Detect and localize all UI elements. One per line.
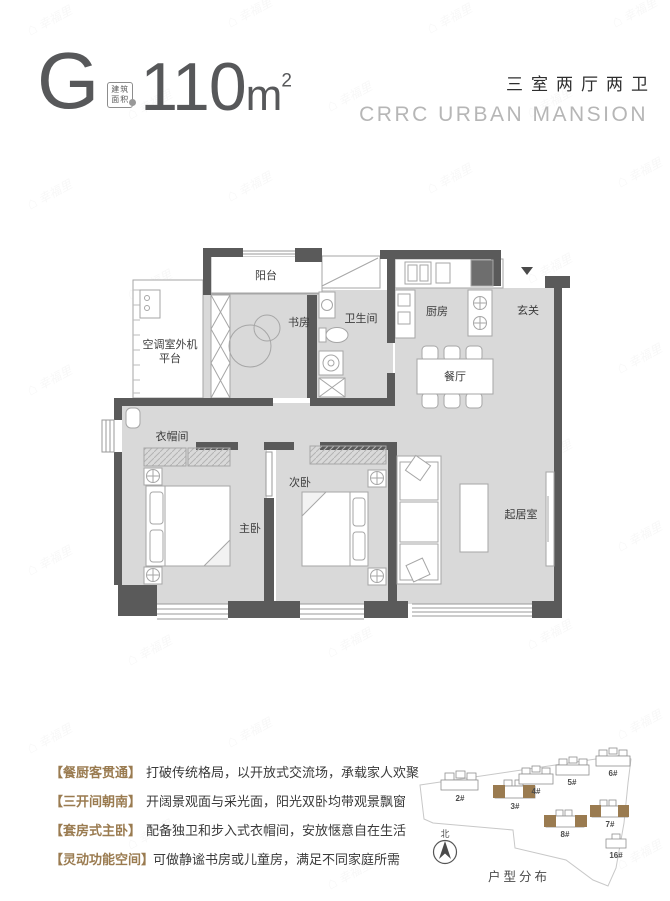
siteplan-drawing: 2# 3# 4# 5# 6# 7# 8# 16# 北 户型分布	[403, 723, 668, 895]
watermark-tile: ⌂幸福里	[609, 0, 660, 31]
balcony-window	[243, 249, 295, 256]
second-bay-window	[300, 604, 364, 619]
fridge	[471, 260, 493, 286]
area-unit: m	[246, 71, 282, 120]
building-label: 16#	[609, 851, 623, 860]
feature-desc: 配备独卫和步入式衣帽间，安放惬意自在生活	[146, 821, 406, 840]
area-superscript: 2	[281, 70, 292, 91]
door-leaf	[266, 452, 272, 496]
wardrobe	[144, 448, 186, 466]
watermark-tile: ⌂幸福里	[424, 0, 475, 37]
building-label: 8#	[561, 830, 570, 839]
unit-title: G 建筑 面积 110m2	[37, 44, 292, 118]
coffee-table	[460, 484, 488, 552]
siteplan-caption: 户型分布	[488, 869, 550, 884]
wardrobe	[310, 446, 386, 464]
header-right: 三室两厅两卫 CRRC URBAN MANSION	[359, 70, 648, 127]
feature-item: 【套房式主卧】 配备独卫和步入式衣帽间，安放惬意自在生活	[50, 821, 400, 840]
room-label-living: 起居室	[505, 507, 538, 521]
feature-desc: 可做静谧书房或儿童房，满足不同家庭所需	[153, 850, 400, 869]
feature-item: 【灵动功能空间】 可做静谧书房或儿童房，满足不同家庭所需	[50, 850, 400, 869]
room-label-balcony: 阳台	[255, 268, 277, 282]
ac-unit	[140, 290, 160, 318]
watermark-tile: ⌂幸福里	[614, 518, 665, 556]
entry-door-arrow-icon	[521, 267, 533, 275]
room-label-kitchen: 厨房	[426, 305, 448, 318]
toilet-tank	[319, 328, 326, 342]
wardrobe	[188, 448, 230, 466]
watermark-tile: ⌂幸福里	[224, 168, 275, 206]
area-badge-line1: 建筑	[111, 85, 129, 95]
building-5	[556, 757, 589, 775]
room-label-second: 次卧	[289, 475, 311, 489]
area-value: 110	[140, 49, 245, 125]
living-window	[412, 604, 532, 616]
feature-list: 【餐厨客贯通】 打破传统格局，以开放式交流场，承载家人欢聚 【三开间朝南】 开阔…	[50, 763, 400, 879]
building-label: 7#	[606, 820, 615, 829]
feature-item: 【三开间朝南】 开阔景观面与采光面，阳光双卧均带观景飘窗	[50, 792, 400, 811]
tv-cabinet	[546, 472, 554, 566]
building-6	[596, 748, 630, 766]
sofa	[397, 455, 441, 584]
room-label-cloakroom: 衣帽间	[156, 429, 189, 443]
watermark-tile: ⌂幸福里	[24, 362, 75, 400]
layout-summary: 三室两厅两卫	[359, 70, 656, 95]
building-label: 4#	[532, 787, 541, 796]
cloakroom-bay-window	[102, 420, 114, 452]
watermark-tile: ⌂幸福里	[614, 154, 665, 192]
watermark-tile: ⌂幸福里	[24, 2, 75, 40]
feature-tag: 【三开间朝南】	[50, 792, 146, 811]
watermark-tile: ⌂幸福里	[24, 542, 75, 580]
area-badge-line2: 面积	[111, 95, 129, 105]
watermark-tile: ⌂幸福里	[224, 714, 275, 752]
feature-tag: 【套房式主卧】	[50, 821, 146, 840]
cloakroom-fixture	[126, 408, 140, 428]
watermark-tile: ⌂幸福里	[24, 720, 75, 758]
room-label-master: 主卧	[239, 522, 261, 535]
room-label-bathroom: 卫生间	[345, 311, 378, 325]
master-bed	[146, 486, 230, 566]
building-label: 2#	[456, 794, 465, 803]
feature-tag: 【灵动功能空间】	[50, 850, 153, 869]
room-label-entry: 玄关	[517, 303, 539, 317]
feature-item: 【餐厨客贯通】 打破传统格局，以开放式交流场，承载家人欢聚	[50, 763, 400, 782]
watermark-tile: ⌂幸福里	[24, 176, 75, 214]
north-label: 北	[440, 829, 449, 839]
feature-tag: 【餐厨客贯通】	[50, 763, 146, 782]
room-label-ac-platform2: 平台	[159, 351, 181, 365]
floorplan-drawing: 阳台 书房 卫生间 厨房 玄关 餐厅 空调室外机 平台 衣帽间 主卧 次卧 起居…	[100, 248, 580, 626]
toilet	[326, 328, 348, 343]
project-name: CRRC URBAN MANSION	[359, 103, 648, 127]
watermark-tile: ⌂幸福里	[324, 624, 375, 662]
second-bed	[302, 492, 368, 566]
north-arrow-icon	[439, 841, 451, 859]
building-4	[519, 766, 553, 784]
building-2	[441, 771, 478, 790]
area-badge: 建筑 面积	[107, 82, 133, 108]
watermark-tile: ⌂幸福里	[614, 340, 665, 378]
north-compass: 北	[434, 829, 457, 864]
badge-dot-icon	[129, 99, 136, 106]
building-label: 3#	[511, 802, 520, 811]
building-label: 6#	[609, 769, 618, 778]
room-label-study: 书房	[288, 316, 310, 329]
feature-desc: 打破传统格局，以开放式交流场，承载家人欢聚	[146, 763, 419, 782]
area-value-group: 110m2	[140, 58, 292, 118]
master-bay-window	[157, 604, 228, 619]
watermark-tile: ⌂幸福里	[124, 632, 175, 670]
room-label-ac-platform: 空调室外机	[143, 337, 198, 351]
watermark-tile: ⌂幸福里	[224, 0, 275, 31]
building-label: 5#	[568, 778, 577, 787]
watermark-tile: ⌂幸福里	[424, 160, 475, 198]
room-label-dining: 餐厅	[444, 369, 466, 383]
feature-desc: 开阔景观面与采光面，阳光双卧均带观景飘窗	[146, 792, 406, 811]
unit-letter: G	[37, 44, 99, 118]
